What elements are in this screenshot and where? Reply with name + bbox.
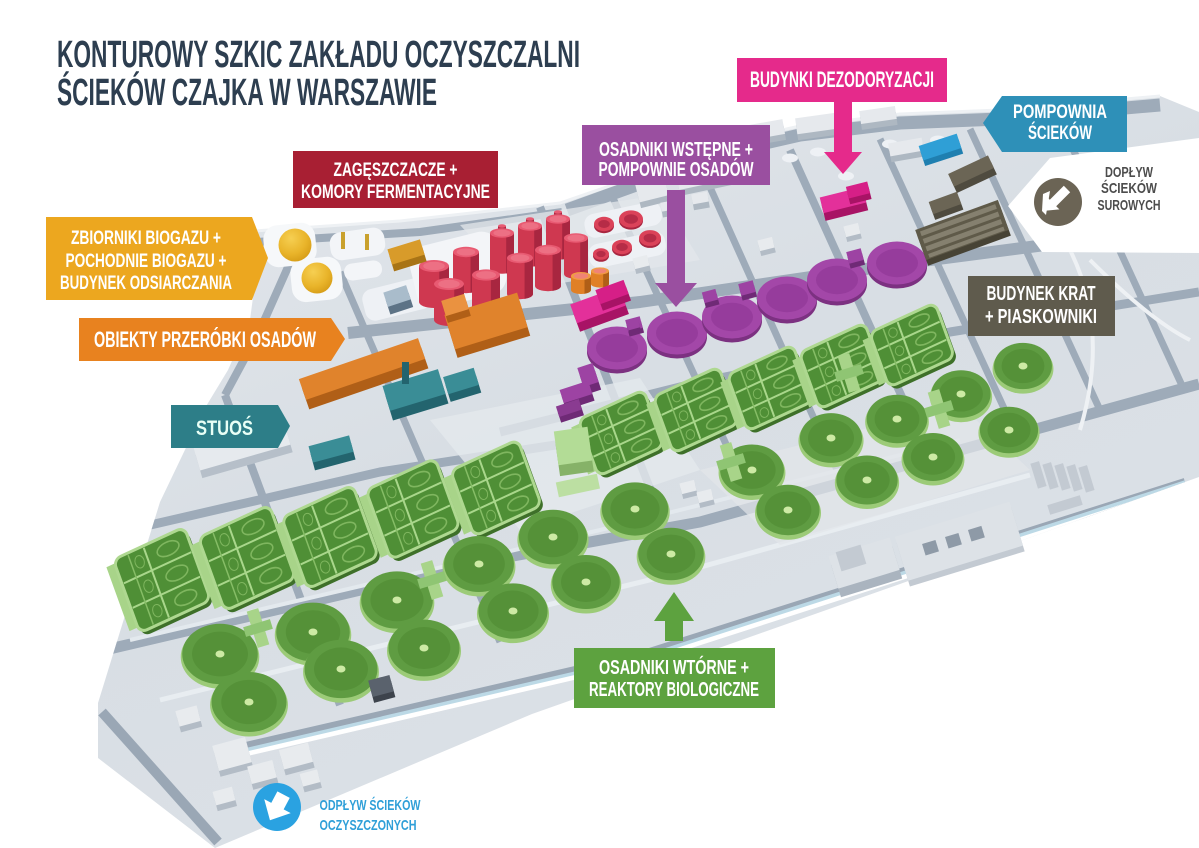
svg-text:BUDYNEK ODSIARCZANIA: BUDYNEK ODSIARCZANIA [60, 273, 232, 294]
svg-text:DOPŁYW: DOPŁYW [1105, 164, 1154, 181]
svg-text:ZAGĘSZCZACZE +: ZAGĘSZCZACZE + [334, 160, 458, 181]
svg-text:OSADNIKI WSTĘPNE +: OSADNIKI WSTĘPNE + [599, 139, 753, 161]
svg-text:+ PIASKOWNIKI: + PIASKOWNIKI [985, 306, 1097, 328]
svg-text:STUOŚ: STUOŚ [196, 416, 253, 440]
svg-text:ŚCIEKÓW: ŚCIEKÓW [1028, 122, 1092, 144]
svg-text:BUDYNEK KRAT: BUDYNEK KRAT [987, 283, 1096, 305]
svg-text:OBIEKTY PRZERÓBKI OSADÓW: OBIEKTY PRZERÓBKI OSADÓW [94, 327, 316, 352]
svg-text:OCZYSZCZONYCH: OCZYSZCZONYCH [320, 817, 417, 834]
svg-text:KONTUROWY SZKIC ZAKŁADU OCZYSZ: KONTUROWY SZKIC ZAKŁADU OCZYSZCZALNI [57, 34, 580, 76]
svg-text:POMPOWNIE OSADÓW: POMPOWNIE OSADÓW [599, 157, 754, 181]
svg-text:POMPOWNIA: POMPOWNIA [1013, 102, 1107, 123]
svg-text:REAKTORY BIOLOGICZNE: REAKTORY BIOLOGICZNE [589, 679, 759, 701]
svg-text:SUROWYCH: SUROWYCH [1098, 197, 1161, 214]
svg-text:ŚCIEKÓW: ŚCIEKÓW [1101, 179, 1158, 197]
svg-text:OSADNIKI WTÓRNE +: OSADNIKI WTÓRNE + [599, 655, 749, 679]
svg-text:ODPŁYW ŚCIEKÓW: ODPŁYW ŚCIEKÓW [320, 796, 422, 814]
svg-text:BUDYNKI DEZODORYZACJI: BUDYNKI DEZODORYZACJI [750, 67, 934, 92]
svg-text:KOMORY FERMENTACYJNE: KOMORY FERMENTACYJNE [301, 182, 490, 203]
svg-text:ZBIORNIKI BIOGAZU +: ZBIORNIKI BIOGAZU + [71, 228, 221, 249]
svg-text:ŚCIEKÓW CZAJKA W WARSZAWIE: ŚCIEKÓW CZAJKA W WARSZAWIE [57, 70, 437, 114]
svg-text:POCHODNIE BIOGAZU +: POCHODNIE BIOGAZU + [66, 251, 227, 272]
